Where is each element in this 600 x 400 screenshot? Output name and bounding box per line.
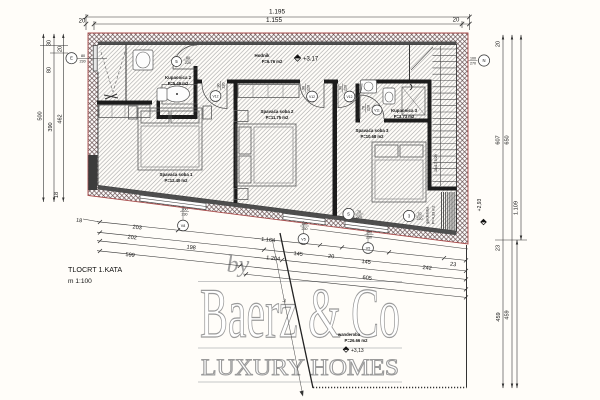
svg-text:P=6.76 m2: P=6.76 m2: [262, 59, 283, 64]
svg-text:220: 220: [367, 105, 371, 111]
svg-text:200: 200: [182, 208, 188, 212]
svg-text:LUXURY HOMES: LUXURY HOMES: [201, 355, 399, 380]
svg-text:Kupaonica 2: Kupaonica 2: [165, 75, 192, 80]
svg-text:70: 70: [357, 210, 361, 214]
svg-text:145: 145: [361, 259, 371, 266]
svg-text:605: 605: [362, 275, 372, 282]
svg-text:70: 70: [362, 106, 366, 110]
svg-text:wanderoba: wanderoba: [337, 332, 361, 337]
svg-text:90: 90: [302, 86, 306, 90]
svg-text:202: 202: [127, 235, 137, 242]
svg-text:TLOCRT 1.KATA: TLOCRT 1.KATA: [68, 265, 122, 274]
svg-text:E: E: [70, 56, 73, 61]
svg-text:P=11.75 m2: P=11.75 m2: [266, 115, 289, 120]
svg-text:242: 242: [422, 265, 432, 272]
svg-text:220: 220: [344, 85, 348, 91]
svg-text:P=5.49 m2: P=5.49 m2: [168, 81, 189, 86]
svg-text:20: 20: [453, 18, 460, 24]
svg-text:Baerz & Co: Baerz & Co: [200, 275, 400, 353]
svg-text:Kupaonica 3: Kupaonica 3: [391, 108, 418, 113]
svg-text:P=12.40 m2: P=12.40 m2: [165, 178, 189, 183]
svg-text:230: 230: [302, 227, 308, 231]
svg-text:500: 500: [38, 111, 44, 120]
svg-text:145: 145: [293, 251, 303, 258]
svg-text:203: 203: [132, 225, 142, 232]
svg-text:140: 140: [366, 231, 372, 235]
svg-text:270: 270: [470, 62, 476, 66]
svg-text:V11: V11: [374, 109, 380, 113]
svg-text:1.195: 1.195: [269, 9, 285, 16]
svg-text:18: 18: [76, 218, 83, 225]
svg-text:220: 220: [222, 83, 226, 89]
svg-text:220: 220: [307, 85, 311, 91]
svg-text:+3,13: +3,13: [351, 348, 364, 354]
svg-text:1.155: 1.155: [266, 17, 282, 24]
svg-text:18: 18: [54, 192, 60, 198]
svg-text:1.109: 1.109: [514, 201, 520, 215]
svg-text:220: 220: [185, 61, 191, 65]
svg-text:70: 70: [418, 212, 422, 216]
svg-text:30: 30: [47, 40, 53, 46]
svg-text:V8: V8: [181, 224, 185, 228]
svg-text:Hodnik: Hodnik: [255, 53, 270, 58]
svg-text:80: 80: [186, 56, 190, 60]
svg-text:20: 20: [79, 19, 86, 25]
svg-text:607: 607: [496, 135, 502, 144]
svg-text:Spavaća soba 3: Spavaća soba 3: [356, 128, 390, 133]
svg-text:80: 80: [47, 67, 53, 73]
svg-text:23: 23: [496, 245, 502, 251]
svg-text:230: 230: [182, 213, 188, 217]
svg-text:+2,93: +2,93: [477, 198, 483, 211]
svg-text:m 1:100: m 1:100: [68, 278, 92, 285]
svg-text:220: 220: [417, 217, 423, 221]
svg-text:140: 140: [302, 222, 308, 226]
svg-text:459: 459: [505, 310, 511, 319]
svg-text:Spavaća soba 1: Spavaća soba 1: [160, 172, 194, 177]
svg-text:S: S: [347, 212, 350, 217]
svg-text:462: 462: [58, 114, 64, 123]
svg-text:P=26.66 m2: P=26.66 m2: [345, 338, 369, 343]
svg-text:V12: V12: [346, 95, 352, 99]
svg-text:390: 390: [48, 122, 54, 131]
svg-text:Spavaća soba 2: Spavaća soba 2: [261, 109, 295, 114]
svg-text:garderoba: garderoba: [426, 206, 430, 224]
svg-text:599: 599: [125, 252, 135, 259]
svg-text:P=3.73 m2: P=3.73 m2: [394, 114, 415, 119]
svg-text:20: 20: [496, 41, 502, 47]
svg-text:100: 100: [470, 57, 476, 61]
svg-text:V12: V12: [309, 95, 315, 99]
svg-text:V5: V5: [301, 238, 305, 242]
svg-text:90: 90: [217, 84, 221, 88]
svg-text:P=4,33 m2: P=4,33 m2: [432, 206, 436, 224]
svg-text:23: 23: [450, 262, 457, 269]
svg-text:90: 90: [339, 86, 343, 90]
svg-text:459: 459: [496, 312, 502, 321]
svg-text:20: 20: [58, 46, 64, 52]
svg-text:V12: V12: [212, 95, 218, 99]
svg-text:20: 20: [328, 254, 335, 261]
svg-text:220: 220: [356, 215, 362, 219]
svg-text:198: 198: [186, 245, 196, 252]
svg-text:N: N: [482, 58, 485, 63]
svg-text:18x17,5/29: 18x17,5/29: [434, 154, 438, 172]
svg-text:230: 230: [80, 60, 86, 64]
svg-text:+3.17: +3.17: [303, 57, 319, 63]
svg-text:P=10.68 m2: P=10.68 m2: [361, 134, 385, 139]
svg-text:650: 650: [505, 135, 511, 144]
svg-text:80: 80: [81, 54, 85, 58]
